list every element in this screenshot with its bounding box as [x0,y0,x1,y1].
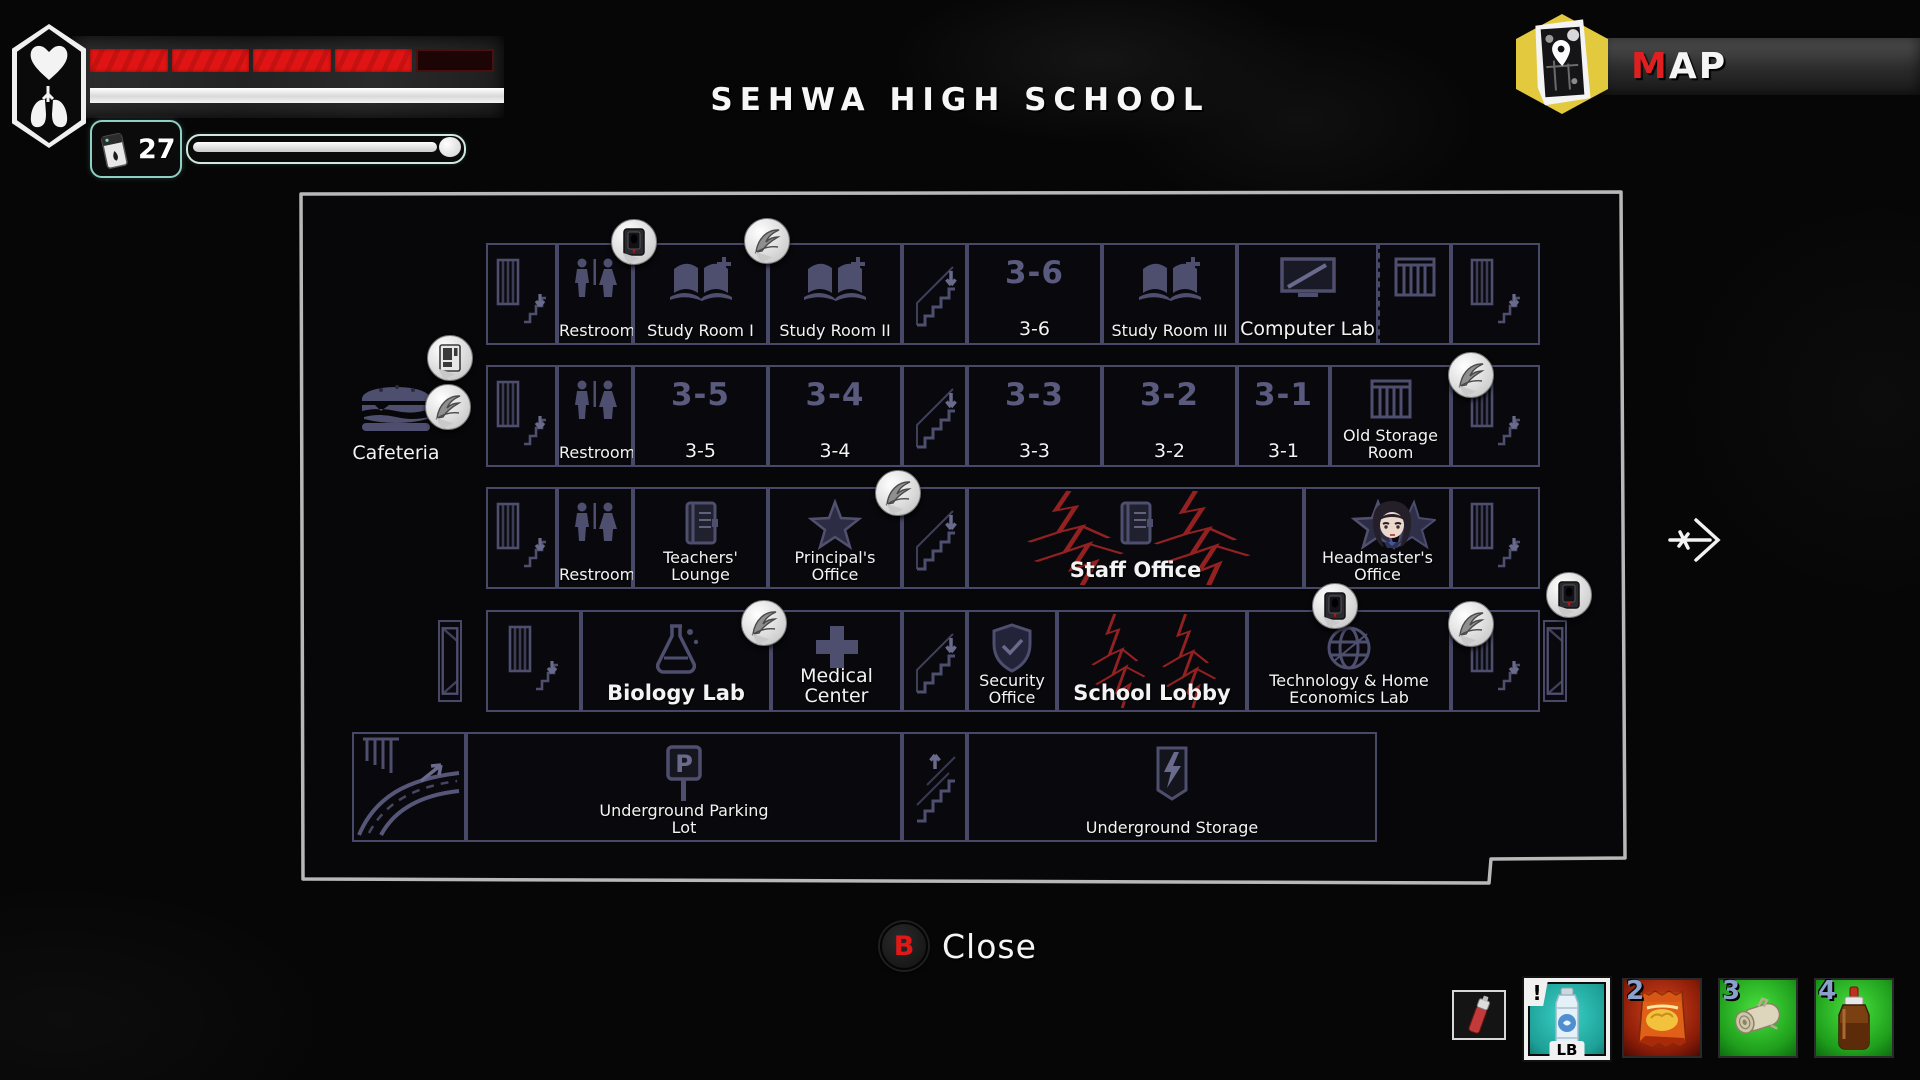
inventory-slot-water-bottle[interactable]: ! LB [1524,978,1610,1060]
ramp-icon [354,740,464,834]
room-underground-storage: Underground Storage [967,732,1377,842]
slot-number: 2 [1626,976,1644,1006]
room-label: Security Office [969,673,1055,707]
shield-icon [969,622,1055,674]
door-stairs-icon [488,495,555,581]
room-classroom-3-6: 3-63-6 [967,243,1102,345]
parking-icon: P [468,744,900,804]
room-door-west [438,620,462,702]
feather-marker [425,384,471,430]
room-number: 3-1 [1239,377,1328,413]
room-shelf-nook [1378,243,1451,345]
gamepad-b-icon: B [880,922,928,970]
room-stairwell-ne [1451,243,1540,345]
globe-icon [1249,622,1449,674]
slot-number: 3 [1722,976,1740,1006]
inventory-slot-chips-bag[interactable]: 2 [1622,978,1702,1058]
restroom-icon [559,377,631,423]
room-classroom-3-4: 3-43-4 [768,365,902,467]
room-stairs-mid-5 [902,732,967,842]
inventory-slot-flare-marker[interactable] [1452,990,1506,1040]
book-plus-icon [635,255,766,305]
room-door-east [1543,620,1567,702]
feather-marker [741,600,787,646]
monitor-icon [1239,255,1376,301]
journal-icon [969,499,1302,549]
document-marker [1312,583,1358,629]
inventory-slot-medicine-bottle[interactable]: 4 [1814,978,1894,1058]
stairs-down-icon [904,251,965,337]
room-label: Study Room I [635,323,766,340]
room-staff-office: Staff Office [967,487,1304,589]
room-label: Underground Storage [969,820,1375,837]
room-number: 3-2 [1104,377,1235,413]
room-teachers-lounge: Teachers' Lounge [633,487,768,589]
room-stairwell-w4 [486,610,581,712]
room-label: Computer Lab [1239,320,1376,340]
room-label: 3-5 [635,442,766,462]
door-stairs-icon [488,251,555,337]
flare-marker-icon [1457,993,1501,1037]
room-label: Restroom [559,323,631,340]
door-stairs-icon [488,373,555,459]
stairs-down-icon [904,373,965,459]
feather-marker [1448,352,1494,398]
room-label: Staff Office [969,559,1302,581]
room-study-room-1: Study Room I [633,243,768,345]
shelf-icon [1332,377,1449,421]
room-stairs-mid-2 [902,365,967,467]
hotkey-label: LB [1550,1041,1585,1059]
player-portrait [1366,498,1418,550]
close-button[interactable]: B Close [880,922,1037,970]
room-school-lobby: School Lobby [1057,610,1247,712]
stairs-down-icon [904,618,965,704]
school-map: Restroom Study Room I Study Room II 3-63… [0,0,1920,1080]
room-stairs-mid-4 [902,610,967,712]
bolt-icon [969,744,1375,802]
room-stairwell-w3 [486,487,557,589]
room-stairwell-nw [486,243,557,345]
inventory-slot-bandage-roll[interactable]: 3 [1718,978,1798,1058]
room-label: Biology Lab [583,682,769,704]
room-label: 3-2 [1104,442,1235,462]
room-classroom-3-3: 3-33-3 [967,365,1102,467]
room-label: Restroom [559,445,631,462]
stairs-up-icon [904,740,965,834]
journal-icon [635,499,766,549]
room-classroom-3-1: 3-13-1 [1237,365,1330,467]
room-stairs-mid-top [902,243,967,345]
document-marker [611,219,657,265]
feather-marker [744,218,790,264]
room-number: 3-6 [969,255,1100,291]
player-location-marker [1366,498,1436,566]
room-label: Study Room II [770,323,900,340]
room-computer-lab: Computer Lab [1237,243,1378,345]
room-classroom-3-2: 3-23-2 [1102,365,1237,467]
next-map-page-arrow[interactable] [1666,512,1728,568]
room-study-room-2: Study Room II [768,243,902,345]
room-restroom-2f: Restroom [557,365,633,467]
book-plus-icon [770,255,900,305]
room-label: Medical Center [773,667,900,707]
room-parking-ramp [352,732,466,842]
flask-icon [583,622,769,676]
restroom-icon [559,499,631,545]
room-label: Old Storage Room [1332,428,1449,462]
door-open-icon [440,628,460,694]
room-label: School Lobby [1059,682,1245,704]
room-number: 3-3 [969,377,1100,413]
room-security-office: Security Office [967,610,1057,712]
room-underground-parking-lot: P Underground Parking Lot [466,732,902,842]
room-label: 3-6 [969,320,1100,340]
close-label: Close [942,927,1037,966]
room-label: 3-4 [770,442,900,462]
book-plus-icon [1104,255,1235,305]
document-marker [1546,572,1592,618]
room-label: Cafeteria [332,444,460,464]
room-old-storage-room: Old Storage Room [1330,365,1451,467]
door-stairs-icon [1453,495,1538,581]
room-tech-home-econ-lab: Technology & Home Economics Lab [1247,610,1451,712]
room-medical-center: Medical Center [771,610,902,712]
shelf-icon [1380,255,1449,299]
vending-machine-marker [427,335,473,381]
room-stairwell-w2 [486,365,557,467]
room-stairwell-e3 [1451,487,1540,589]
door-open-icon [1545,628,1565,694]
room-label: 3-1 [1239,442,1328,462]
room-label: Restroom [559,567,631,584]
slot-number: 4 [1818,976,1836,1006]
room-label: Study Room III [1104,323,1235,340]
room-restroom-1f: Restroom [557,487,633,589]
room-number: 3-4 [770,377,900,413]
door-stairs-icon [1453,251,1538,337]
room-label: 3-3 [969,442,1100,462]
feather-marker [1448,601,1494,647]
door-stairs-icon [488,618,579,704]
room-label: Technology & Home Economics Lab [1249,673,1449,707]
room-label: Underground Parking Lot [468,803,900,837]
svg-text:P: P [675,750,693,778]
room-classroom-3-5: 3-53-5 [633,365,768,467]
room-number: 3-5 [635,377,766,413]
room-study-room-3: Study Room III [1102,243,1237,345]
feather-marker [875,470,921,516]
room-label: Principal's Office [770,550,900,584]
room-label: Teachers' Lounge [635,550,766,584]
